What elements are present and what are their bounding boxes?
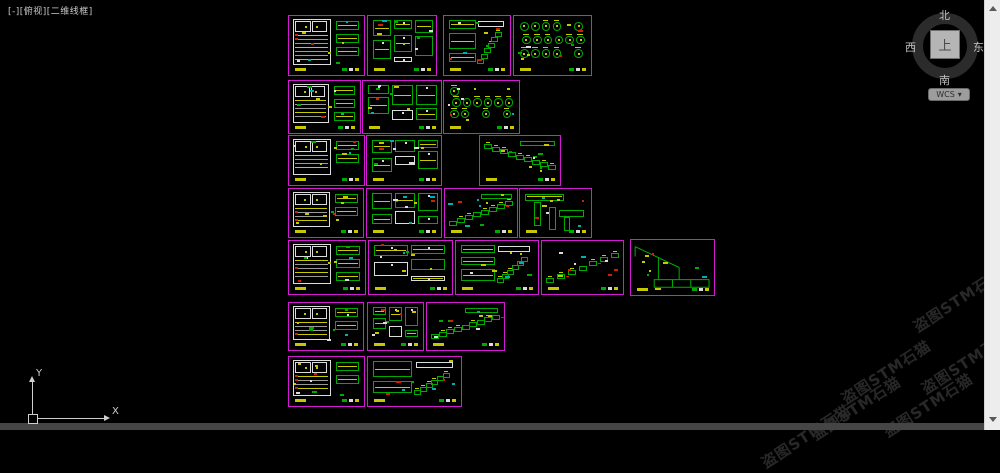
drawing-geometry: [534, 53, 536, 55]
drawing-geometry: [370, 105, 387, 106]
drawing-geometry: [295, 388, 328, 389]
drawing-geometry: [557, 199, 560, 201]
drawing-geometry: [462, 108, 468, 109]
drawing-geometry: [342, 178, 347, 181]
drawing-geometry: [451, 24, 474, 25]
drawing-geometry: [421, 147, 423, 149]
drawing-geometry: [296, 392, 301, 394]
drawing-sheet[interactable]: [367, 302, 424, 351]
drawing-geometry: [426, 230, 430, 233]
drawing-geometry: [381, 309, 385, 311]
drawing-geometry: [390, 140, 395, 142]
drawing-geometry: [323, 215, 327, 217]
drawing-geometry: [545, 178, 549, 181]
drawing-geometry: [372, 334, 375, 336]
drawing-geometry: [491, 205, 495, 206]
drawing-geometry: [305, 367, 307, 369]
drawing-geometry: [389, 326, 402, 337]
drawing-geometry: [582, 68, 586, 71]
drawing-geometry: [338, 379, 357, 380]
drawing-geometry: [569, 39, 571, 41]
drawing-geometry: [349, 68, 353, 71]
drawing-geometry: [529, 287, 533, 290]
drawing-geometry: [519, 262, 523, 264]
drawing-geometry: [295, 47, 328, 48]
drawing-geometry: [295, 167, 328, 168]
drawing-geometry: [474, 88, 477, 90]
drawing-geometry: [492, 147, 500, 152]
drawing-geometry: [376, 98, 379, 100]
drawing-geometry: [336, 90, 353, 91]
drawing-geometry: [295, 212, 327, 213]
drawing-geometry: [566, 276, 569, 277]
drawing-geometry: [345, 126, 349, 129]
drawing-geometry: [501, 68, 505, 71]
drawing-geometry: [295, 21, 311, 32]
drawing-geometry: [421, 385, 425, 386]
drawing-geometry: [426, 178, 430, 181]
scroll-down-icon[interactable]: [989, 417, 997, 422]
drawing-geometry: [579, 266, 587, 271]
drawing-geometry: [295, 34, 298, 36]
drawing-geometry: [349, 152, 351, 154]
drawing-geometry: [485, 96, 491, 97]
drawing-geometry: [375, 49, 389, 50]
viewcube-top-face[interactable]: 上: [930, 30, 960, 59]
drawing-geometry: [578, 53, 580, 55]
drawing-geometry: [420, 160, 436, 161]
drawing-sheet[interactable]: [288, 80, 361, 134]
drawing-geometry: [316, 146, 318, 148]
drawing-geometry: [457, 218, 465, 223]
drawing-geometry: [295, 230, 306, 233]
ucs-x-label: X: [112, 406, 119, 417]
drawing-geometry: [486, 178, 497, 181]
drawing-geometry: [567, 24, 570, 26]
drawing-geometry: [495, 230, 500, 233]
drawing-geometry: [315, 91, 317, 93]
drawing-geometry: [695, 267, 699, 269]
drawing-sheet[interactable]: [455, 240, 539, 295]
drawing-geometry: [328, 106, 331, 108]
drawing-geometry: [382, 160, 384, 162]
drawing-geometry: [495, 96, 501, 97]
drawing-sheet[interactable]: [479, 135, 561, 186]
wcs-label: WCS: [936, 90, 955, 99]
drawing-sheet[interactable]: [288, 302, 364, 351]
drawing-geometry: [545, 34, 551, 35]
drawing-geometry: [523, 287, 527, 290]
drawing-geometry: [518, 153, 522, 154]
drawing-geometry: [542, 205, 547, 207]
viewcube-east-label[interactable]: 东: [973, 39, 984, 55]
drawing-geometry: [403, 252, 406, 254]
drawing-geometry: [316, 98, 320, 100]
drawing-geometry: [304, 199, 306, 201]
drawing-geometry: [295, 260, 328, 261]
drawing-geometry: [496, 28, 500, 30]
drawing-geometry: [614, 269, 618, 271]
drawing-geometry: [338, 276, 358, 277]
drawing-geometry: [295, 287, 306, 290]
viewcube-south-label[interactable]: 南: [939, 72, 950, 88]
drawing-geometry: [556, 53, 558, 55]
drawing-sheet[interactable]: [426, 302, 505, 351]
drawing-geometry: [448, 320, 450, 322]
drawing-geometry: [337, 312, 356, 313]
vertical-scrollbar[interactable]: [984, 0, 1000, 430]
drawing-geometry: [467, 213, 471, 214]
drawing-geometry: [448, 203, 453, 205]
drawing-geometry: [345, 309, 348, 311]
drawing-geometry: [401, 343, 406, 346]
drawing-sheet[interactable]: [519, 188, 592, 238]
drawing-geometry: [353, 141, 357, 143]
drawing-geometry: [482, 214, 485, 215]
drawing-geometry: [526, 155, 530, 156]
drawing-geometry: [521, 257, 528, 262]
drawing-geometry: [520, 141, 555, 146]
drawing-geometry: [508, 152, 516, 157]
drawing-geometry: [559, 252, 563, 254]
drawing-geometry: [501, 317, 504, 318]
drawing-geometry: [452, 399, 456, 402]
drawing-geometry: [293, 145, 296, 147]
drawing-geometry: [548, 287, 559, 290]
drawing-geometry: [373, 178, 384, 181]
drawing-geometry: [342, 42, 345, 44]
drawing-geometry: [449, 360, 454, 362]
drawing-sheet[interactable]: [443, 15, 511, 76]
drawing-geometry: [315, 365, 318, 367]
drawing-geometry: [705, 288, 709, 291]
drawing-geometry: [348, 230, 352, 233]
drawing-geometry: [432, 126, 436, 129]
drawing-geometry: [406, 251, 409, 253]
drawing-geometry: [611, 253, 619, 258]
drawing-geometry: [382, 20, 387, 22]
drawing-geometry: [574, 263, 576, 265]
drawing-geometry: [534, 202, 541, 226]
drawing-geometry: [582, 200, 584, 202]
drawing-geometry: [516, 155, 524, 160]
drawing-geometry: [374, 399, 385, 402]
drawing-geometry: [486, 142, 490, 143]
wcs-dropdown[interactable]: WCS▾: [928, 88, 970, 101]
drawing-geometry: [310, 90, 314, 92]
drawing-geometry: [334, 261, 337, 263]
drawing-geometry: [416, 362, 453, 368]
drawing-geometry: [494, 145, 498, 146]
drawing-geometry: [295, 39, 328, 40]
drawing-geometry: [394, 249, 397, 251]
drawing-geometry: [443, 379, 445, 381]
drawing-geometry: [484, 144, 492, 149]
ucs-y-label: Y: [36, 368, 42, 379]
viewcube-north-label[interactable]: 北: [939, 7, 950, 23]
drawing-geometry: [349, 178, 353, 181]
drawing-geometry: [338, 25, 357, 26]
drawing-geometry: [505, 276, 509, 278]
drawing-geometry: [295, 51, 328, 52]
drawing-geometry: [432, 230, 436, 233]
drawing-sheet[interactable]: [288, 135, 365, 186]
drawing-geometry: [355, 68, 359, 71]
drawing-geometry: [506, 96, 512, 97]
drawing-geometry: [507, 199, 511, 200]
viewport-controls[interactable]: [-][俯视][二维线框]: [8, 4, 93, 17]
drawing-geometry: [430, 287, 435, 290]
drawing-geometry: [374, 165, 390, 166]
drawing-geometry: [343, 287, 348, 290]
drawing-geometry: [483, 208, 487, 209]
drawing-geometry: [523, 34, 529, 35]
drawing-sheet[interactable]: [288, 356, 365, 407]
drawing-geometry: [548, 276, 552, 277]
drawing-sheet[interactable]: [368, 240, 453, 295]
drawing-geometry: [405, 206, 408, 208]
drawing-geometry: [446, 399, 450, 402]
drawing-geometry: [295, 108, 326, 109]
drawing-geometry: [295, 112, 326, 113]
drawing-geometry: [419, 230, 424, 233]
drawing-geometry: [465, 308, 498, 313]
drawing-geometry: [430, 268, 432, 270]
status-bar-strip: [0, 423, 984, 430]
drawing-geometry: [569, 68, 574, 71]
drawing-geometry: [505, 201, 513, 206]
drawing-geometry: [295, 159, 328, 160]
drawing-geometry: [396, 24, 410, 25]
drawing-geometry: [305, 146, 307, 148]
drawing-geometry: [407, 108, 410, 110]
drawing-sheet[interactable]: [367, 356, 462, 407]
drawing-geometry: [312, 391, 316, 393]
drawing-geometry: [340, 394, 343, 396]
drawing-geometry: [451, 85, 457, 86]
drawing-geometry: [492, 315, 500, 320]
drawing-geometry: [564, 217, 570, 231]
drawing-geometry: [534, 34, 540, 35]
drawing-geometry: [453, 90, 455, 92]
drawing-geometry: [297, 60, 301, 62]
drawing-geometry: [465, 215, 473, 220]
drawing-geometry: [575, 47, 581, 48]
drawing-geometry: [295, 163, 328, 164]
drawing-geometry: [558, 39, 560, 41]
drawing-geometry: [376, 88, 380, 90]
drawing-geometry: [304, 313, 306, 315]
drawing-geometry: [295, 264, 328, 265]
drawing-geometry: [297, 322, 300, 324]
drawing-geometry: [311, 43, 314, 45]
drawing-geometry: [333, 329, 335, 331]
drawing-geometry: [484, 32, 488, 34]
drawing-geometry: [402, 112, 404, 114]
drawing-geometry: [338, 51, 357, 52]
drawing-geometry: [403, 37, 405, 39]
drawing-sheet[interactable]: [367, 15, 437, 76]
drawing-geometry: [334, 90, 337, 92]
drawing-sheet[interactable]: [630, 239, 715, 296]
drawing-geometry: [543, 47, 549, 48]
drawing-geometry: [379, 142, 384, 144]
drawing-geometry: [295, 272, 328, 273]
drawing-geometry: [502, 147, 506, 148]
drawing-geometry: [459, 216, 463, 217]
drawing-geometry: [377, 33, 382, 35]
drawing-geometry: [309, 329, 313, 331]
drawing-geometry: [439, 320, 443, 322]
drawing-geometry: [328, 52, 331, 54]
drawing-geometry: [498, 246, 530, 252]
drawing-geometry: [480, 224, 484, 226]
drawing-geometry: [312, 246, 327, 257]
drawing-geometry: [320, 163, 322, 165]
drawing-geometry: [649, 270, 651, 272]
drawing-geometry: [305, 26, 307, 28]
drawing-geometry: [414, 343, 418, 346]
drawing-geometry: [337, 325, 356, 326]
drawing-geometry: [443, 287, 447, 290]
drawing-geometry: [525, 39, 527, 41]
drawing-geometry: [295, 384, 328, 385]
drawing-geometry: [355, 399, 359, 402]
drawing-geometry: [448, 327, 452, 328]
drawing-geometry: [479, 315, 483, 317]
drawing-geometry: [491, 37, 498, 42]
drawing-geometry: [578, 30, 582, 32]
drawing-geometry: [457, 88, 460, 90]
drawing-geometry: [481, 210, 489, 215]
drawing-geometry: [394, 21, 397, 23]
drawing-sheet[interactable]: [366, 135, 442, 186]
drawing-geometry: [348, 343, 352, 346]
drawing-geometry: [338, 158, 357, 159]
drawing-geometry: [417, 26, 431, 27]
drawing-geometry: [466, 102, 468, 104]
drawing-geometry: [386, 393, 390, 395]
drawing-geometry: [295, 375, 298, 377]
drawing-geometry: [295, 276, 328, 277]
drawing-geometry: [295, 376, 328, 377]
drawing-sheet[interactable]: [366, 188, 442, 238]
drawing-geometry: [417, 37, 420, 39]
drawing-geometry: [538, 153, 543, 155]
drawing-geometry: [308, 59, 311, 61]
drawing-sheet[interactable]: [362, 80, 442, 134]
drawing-geometry: [312, 194, 327, 205]
drawing-geometry: [453, 96, 459, 97]
drawing-geometry: [304, 257, 307, 259]
drawing-geometry: [426, 110, 428, 112]
drawing-sheet[interactable]: [541, 240, 624, 295]
drawing-geometry: [582, 230, 586, 233]
drawing-geometry: [375, 287, 386, 290]
drawing-geometry: [298, 363, 302, 365]
drawing-geometry: [527, 274, 532, 276]
drawing-geometry: [295, 35, 328, 36]
drawing-sheet[interactable]: [513, 15, 592, 76]
drawing-geometry: [504, 126, 508, 129]
drawing-geometry: [431, 200, 435, 202]
drawing-geometry: [501, 150, 505, 152]
drawing-geometry: [295, 100, 326, 101]
drawing-geometry: [411, 254, 415, 256]
drawing-sheet[interactable]: [444, 188, 518, 238]
drawing-sheet[interactable]: [288, 15, 365, 76]
ucs-origin-box: [28, 414, 38, 424]
viewcube-west-label[interactable]: 西: [905, 39, 916, 55]
drawing-geometry: [402, 270, 405, 272]
drawing-geometry: [403, 59, 405, 61]
drawing-geometry: [554, 20, 560, 21]
drawing-geometry: [518, 52, 522, 54]
drawing-geometry: [637, 288, 648, 291]
drawing-geometry: [375, 387, 410, 388]
drawing-sheet[interactable]: [443, 80, 520, 134]
drawing-geometry: [483, 108, 489, 109]
scroll-up-icon[interactable]: [989, 6, 997, 11]
drawing-geometry: [391, 314, 400, 315]
drawing-geometry: [502, 230, 506, 233]
drawing-geometry: [580, 39, 582, 41]
drawing-geometry: [450, 114, 452, 116]
drawing-sheet[interactable]: [288, 188, 364, 238]
drawing-geometry: [426, 126, 430, 129]
drawing-geometry: [465, 225, 470, 227]
drawing-geometry: [345, 279, 349, 281]
cad-canvas[interactable]: [0, 0, 984, 423]
drawing-geometry: [692, 288, 697, 291]
drawing-geometry: [295, 379, 298, 381]
drawing-sheet[interactable]: [288, 240, 366, 295]
drawing-geometry: [554, 47, 560, 48]
drawing-geometry: [576, 230, 580, 233]
drawing-geometry: [421, 68, 425, 71]
drawing-geometry: [295, 219, 298, 221]
drawing-geometry: [477, 311, 480, 313]
drawing-geometry: [305, 251, 307, 253]
drawing-geometry: [321, 116, 324, 118]
drawing-geometry: [456, 325, 460, 326]
drawing-geometry: [402, 389, 405, 391]
drawing-geometry: [295, 194, 311, 205]
drawing-geometry: [375, 311, 384, 312]
drawing-geometry: [488, 68, 493, 71]
drawing-geometry: [663, 262, 668, 264]
drawing-geometry: [473, 212, 481, 217]
drawing-geometry: [516, 287, 521, 290]
drawing-geometry: [327, 339, 331, 341]
drawing-geometry: [295, 334, 327, 335]
drawing-geometry: [337, 198, 356, 199]
drawing-geometry: [375, 369, 410, 370]
drawing-geometry: [642, 261, 645, 263]
drawing-geometry: [453, 113, 455, 115]
drawing-geometry: [533, 157, 536, 159]
drawing-geometry: [461, 98, 464, 100]
drawing-geometry: [374, 219, 390, 220]
drawing-geometry: [428, 278, 430, 280]
drawing-geometry: [489, 343, 493, 346]
drawing-geometry: [476, 102, 478, 104]
drawing-geometry: [462, 287, 473, 290]
drawing-geometry: [338, 38, 357, 39]
drawing-geometry: [295, 68, 306, 71]
drawing-geometry: [702, 276, 707, 278]
drawing-geometry: [336, 116, 353, 117]
